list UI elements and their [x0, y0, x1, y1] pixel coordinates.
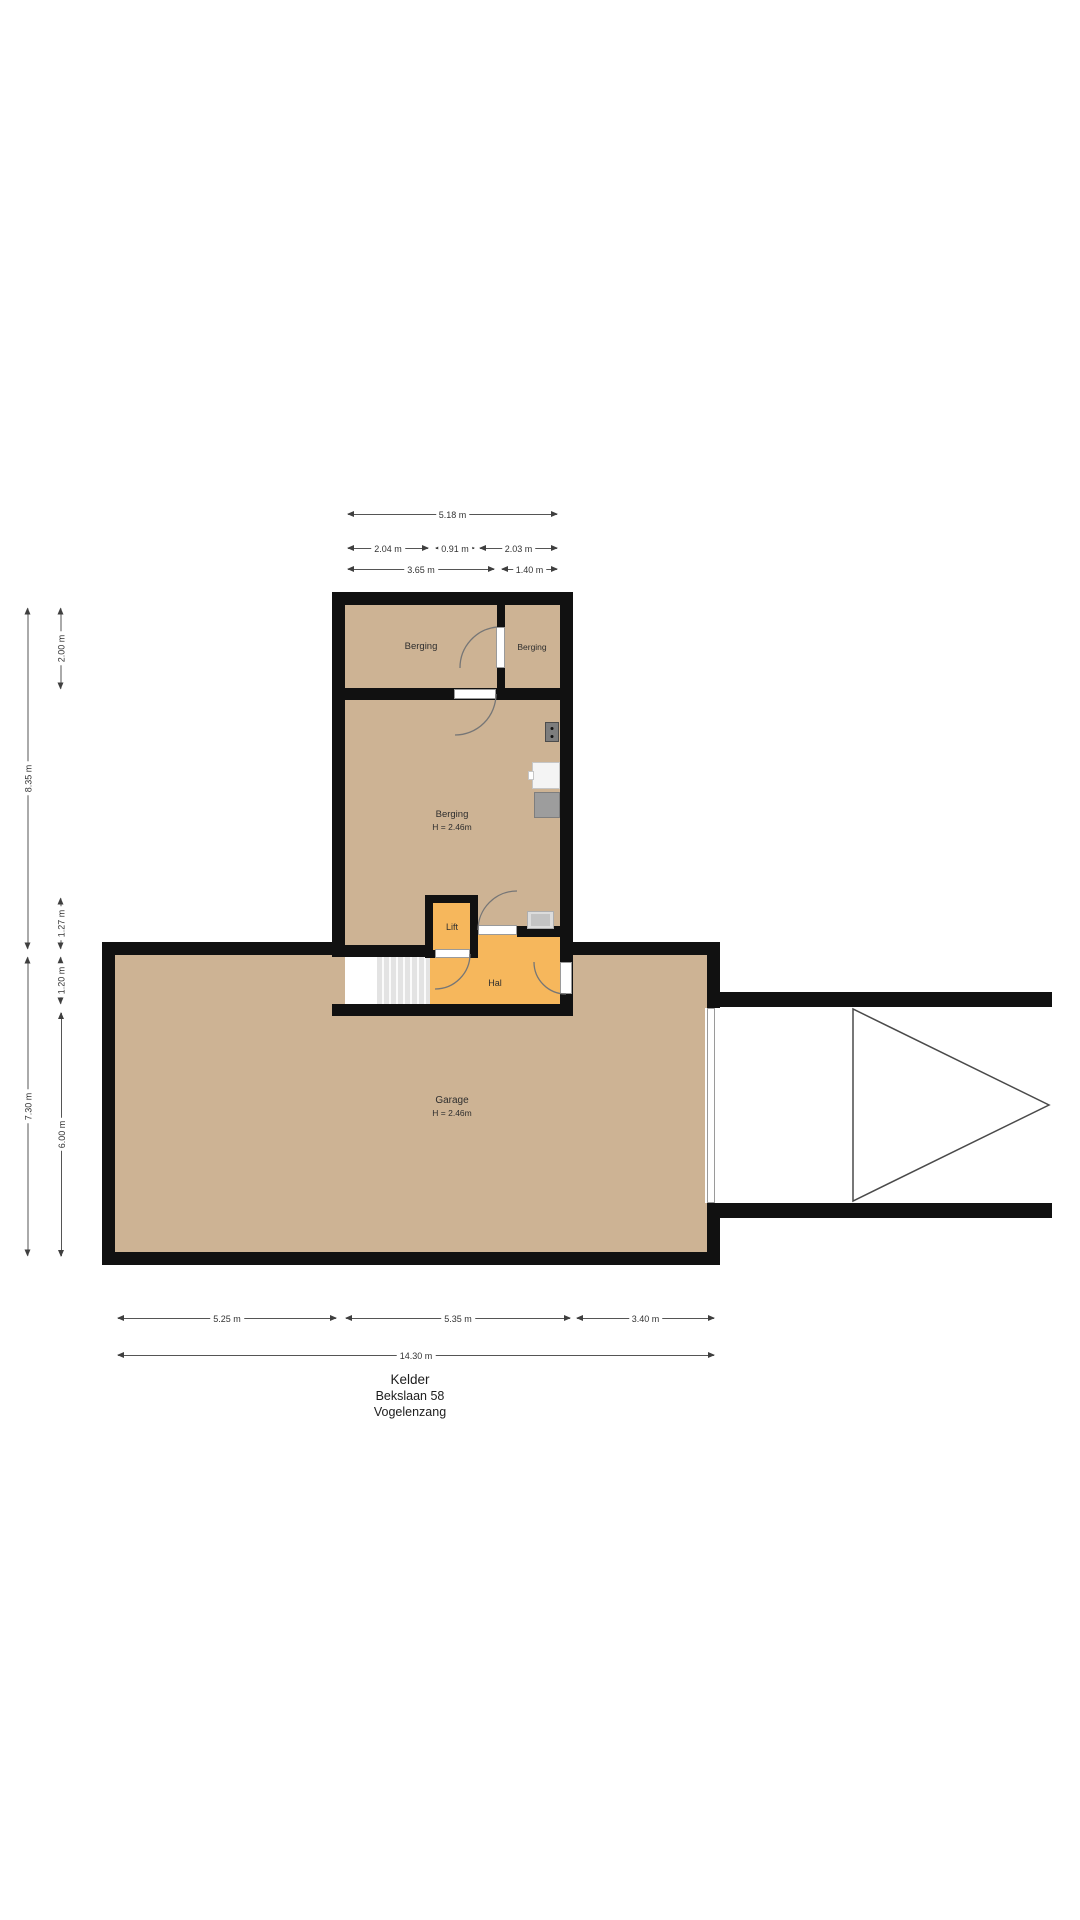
door-berging-main — [454, 689, 496, 699]
label-berging-main: Berging H = 2.46m — [432, 809, 471, 833]
wall-driveway-bottom — [707, 1203, 1052, 1218]
wall-upper-left — [332, 592, 345, 957]
dim-left-120: 1.20 m — [61, 958, 62, 1004]
label-hal: Hal — [488, 977, 502, 989]
worktop-handle-icon — [528, 771, 534, 780]
title-floor-name: Kelder — [374, 1372, 446, 1388]
wall-garage-top-right — [573, 942, 720, 955]
dim-top-365: 3.65 m — [348, 569, 494, 570]
door-hal-right — [560, 962, 572, 994]
wall-under-top-rooms — [345, 688, 560, 700]
dim-top-091: 0.91 m — [436, 548, 474, 549]
label-berging-top-right: Berging — [517, 641, 546, 653]
wall-garage-bottom — [102, 1252, 720, 1265]
title-city: Vogelenzang — [374, 1404, 446, 1420]
dim-top-518: 5.18 m — [348, 514, 557, 515]
wall-upper-right — [560, 592, 573, 943]
wall-garage-left — [102, 942, 115, 1265]
dim-bottom-525: 5.25 m — [118, 1318, 336, 1319]
label-lift: Lift — [446, 921, 458, 933]
dim-top-204: 2.04 m — [348, 548, 428, 549]
door-lift — [435, 949, 470, 958]
wall-below-stairs-hal — [332, 1004, 573, 1016]
wall-garage-top-left — [102, 942, 345, 955]
dim-top-140: 1.40 m — [502, 569, 557, 570]
dim-left-835: 8.35 m — [28, 609, 29, 949]
dim-left-600: 6.00 m — [61, 1013, 62, 1256]
door-between-bergings — [496, 627, 505, 668]
worktop-icon — [532, 762, 560, 789]
dim-left-730: 7.30 m — [28, 958, 29, 1256]
doormat-icon — [527, 911, 554, 929]
door-hal-top — [478, 925, 517, 935]
driveway-arrow-icon — [853, 1009, 1049, 1201]
meter-cabinet-icon — [545, 722, 559, 742]
plan-title: Kelder Bekslaan 58 Vogelenzang — [374, 1372, 446, 1420]
dim-left-127: 1.27 m — [61, 899, 62, 949]
boiler-icon — [534, 792, 560, 818]
dim-bottom-340: 3.40 m — [577, 1318, 714, 1319]
wall-above-stairs — [332, 945, 428, 957]
stairs-landing — [345, 957, 378, 1004]
dim-left-200: 2.00 m — [61, 609, 62, 689]
dim-top-203: 2.03 m — [480, 548, 557, 549]
dim-bottom-1430: 14.30 m — [118, 1355, 714, 1356]
title-street: Bekslaan 58 — [374, 1388, 446, 1404]
dim-bottom-535: 5.35 m — [346, 1318, 570, 1319]
garage-door — [707, 1008, 715, 1203]
wall-upper-top — [332, 592, 573, 605]
label-berging-top-left: Berging — [405, 641, 438, 653]
wall-driveway-top — [707, 992, 1052, 1007]
stairs-treads — [377, 957, 430, 1004]
label-garage: Garage H = 2.46m — [432, 1095, 471, 1119]
floorplan-canvas: Berging Berging Berging H = 2.46m Lift H… — [0, 0, 1080, 1920]
